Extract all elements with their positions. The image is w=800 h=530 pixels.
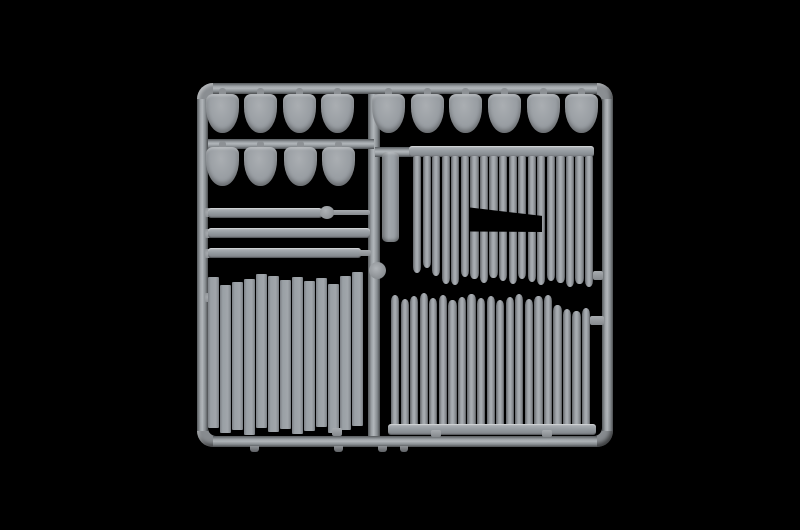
palisade-log [401, 299, 409, 426]
palisade-log [566, 156, 574, 287]
wall-plank [280, 280, 291, 429]
connector-nub [332, 428, 342, 436]
palisade-log [429, 298, 437, 426]
palisade-log [423, 156, 431, 268]
palisade-beam [388, 424, 596, 435]
palisade-log [547, 156, 555, 281]
wall-plank [232, 282, 243, 430]
wall-plank [268, 276, 279, 432]
beam-strip-part [208, 208, 322, 218]
ejector-tab [250, 446, 259, 452]
palisade-log [556, 156, 564, 283]
palisade-log [442, 156, 450, 284]
palisade-log [461, 156, 469, 277]
ejector-tab [334, 446, 343, 452]
palisade-log [563, 309, 571, 426]
palisade-log [506, 297, 514, 426]
palisade-log [432, 156, 440, 276]
model-kit-sprue [0, 0, 800, 530]
palisade-log [458, 297, 466, 426]
photo-stage [0, 0, 800, 530]
connector-nub [593, 271, 603, 280]
palisade-log [477, 298, 485, 426]
strip-knob [320, 206, 334, 219]
wall-plank [256, 274, 267, 428]
palisade-log [515, 294, 523, 426]
palisade-log [572, 311, 580, 426]
runner-node [369, 262, 386, 279]
wall-plank [244, 279, 255, 435]
wall-plank [292, 277, 303, 434]
palisade-log [496, 300, 504, 426]
connector-nub [590, 316, 604, 325]
palisade-log [413, 156, 421, 273]
palisade-log [420, 293, 428, 426]
beam-strip-part [208, 228, 370, 238]
palisade-log [585, 156, 593, 287]
wall-plank [304, 281, 315, 431]
palisade-log [410, 296, 418, 426]
connector-nub [431, 430, 441, 437]
palisade-log [575, 156, 583, 284]
tall-plank-part [382, 152, 399, 242]
ejector-tab [378, 446, 387, 452]
wall-plank [340, 276, 351, 430]
palisade-log [439, 295, 447, 426]
beam-strip-part [208, 248, 361, 258]
palisade-log [525, 299, 533, 426]
palisade-log [544, 295, 552, 426]
palisade-log [451, 156, 459, 285]
wall-plank [328, 284, 339, 433]
strip-connector-rod [359, 250, 371, 256]
palisade-log [582, 308, 590, 426]
strip-connector-rod [332, 210, 370, 215]
palisade-log [448, 300, 456, 426]
palisade-log [534, 296, 542, 426]
ejector-tab [400, 446, 408, 452]
right-rail [602, 99, 613, 431]
palisade-log [487, 296, 495, 426]
left-rail [197, 99, 208, 431]
wall-plank [316, 278, 327, 427]
wall-plank [352, 272, 363, 426]
palisade-log [553, 305, 561, 426]
palisade-log [391, 295, 399, 426]
connector-nub [542, 430, 552, 437]
wall-plank [220, 285, 231, 433]
palisade-log [467, 294, 475, 426]
wall-plank [208, 277, 219, 428]
